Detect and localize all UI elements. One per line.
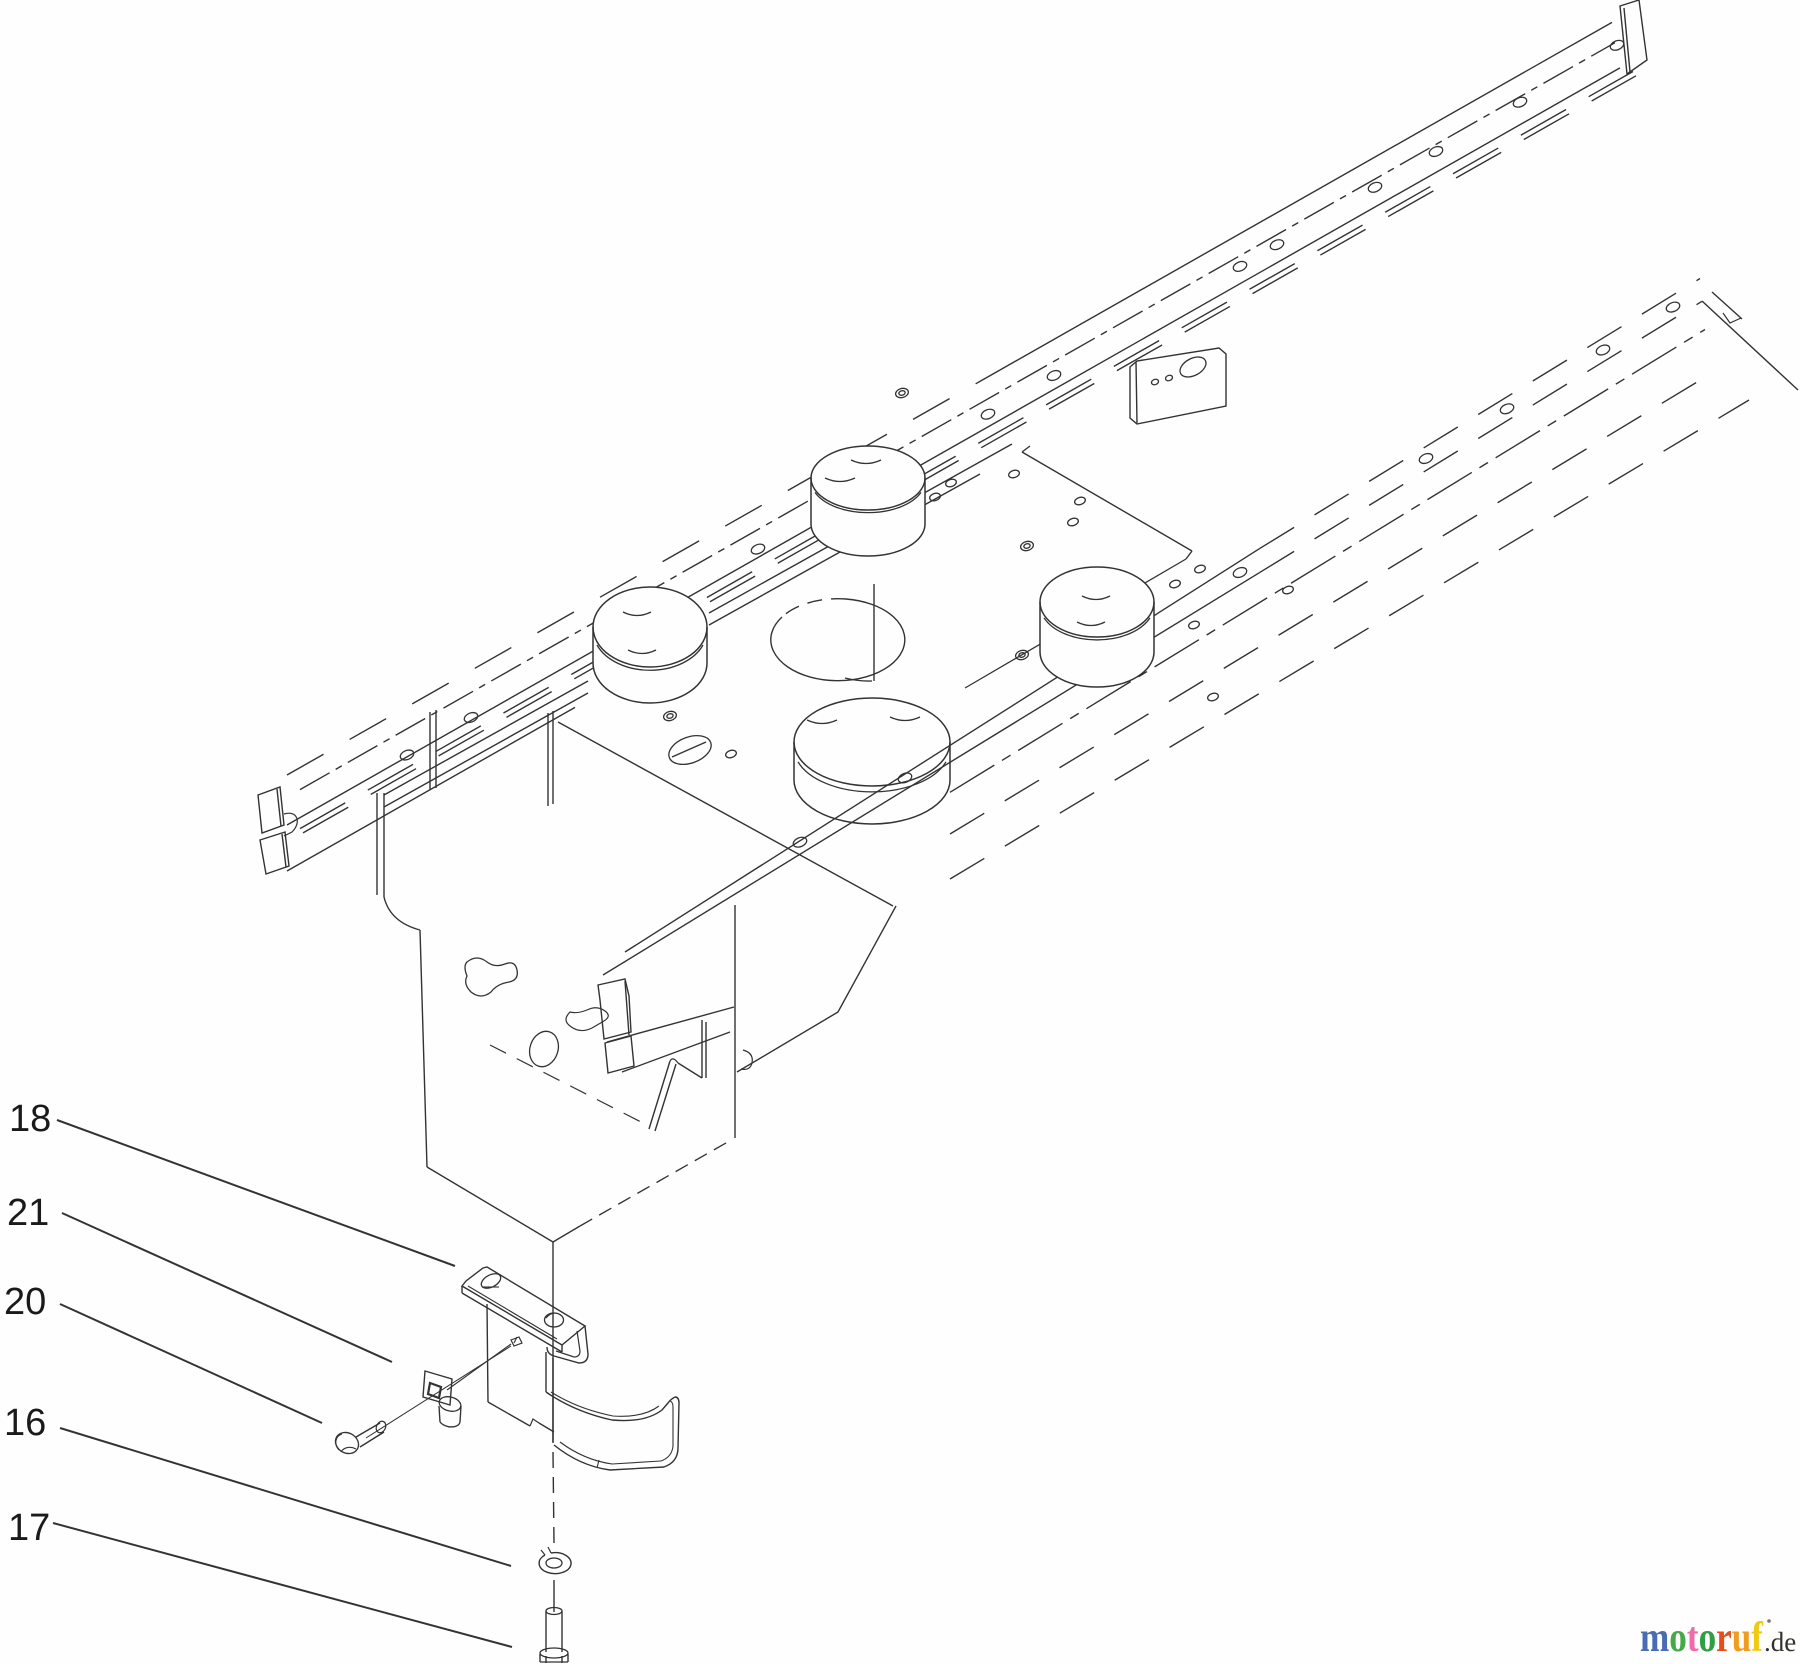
svg-text:motoruf: motoruf bbox=[1640, 1615, 1764, 1661]
svg-text:20: 20 bbox=[4, 1281, 46, 1323]
svg-text:.de: .de bbox=[1764, 1627, 1796, 1657]
svg-text:21: 21 bbox=[7, 1192, 49, 1234]
svg-text:16: 16 bbox=[4, 1402, 46, 1444]
svg-text:17: 17 bbox=[8, 1507, 50, 1549]
svg-text:18: 18 bbox=[9, 1098, 51, 1140]
